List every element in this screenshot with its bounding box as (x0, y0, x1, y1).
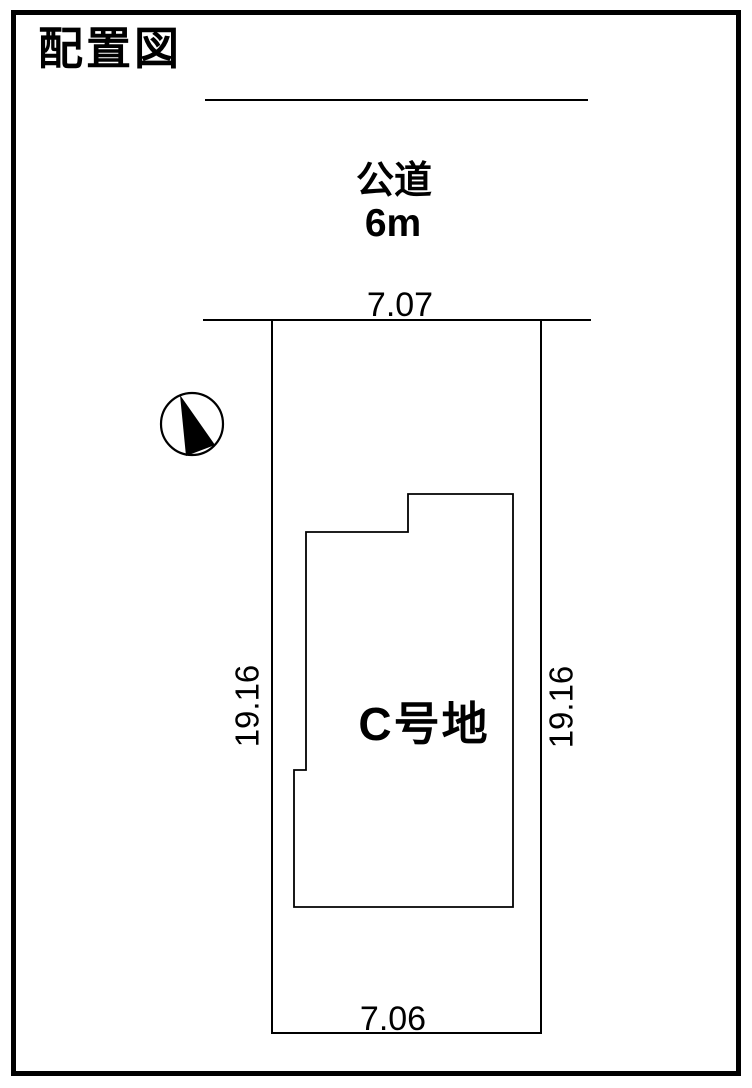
site-plan-diagram: 配置図 公道 6m 7.07 C号地 19.16 19.16 7.06 (0, 0, 752, 1088)
dimension-left: 19.16 (229, 665, 266, 748)
page-title: 配置図 (38, 23, 182, 74)
dimension-right: 19.16 (543, 666, 580, 749)
dimension-top: 7.07 (367, 286, 433, 324)
site-plan-page: 配置図 公道 6m 7.07 C号地 19.16 19.16 7.06 (0, 0, 752, 1088)
plot-boundary (272, 320, 541, 1033)
dimension-bottom: 7.06 (360, 1000, 426, 1038)
road-width-label: 6m (365, 202, 421, 245)
road-label: 公道 (356, 160, 432, 202)
north-arrow-icon (161, 393, 223, 456)
plot-label: C号地 (358, 698, 489, 750)
